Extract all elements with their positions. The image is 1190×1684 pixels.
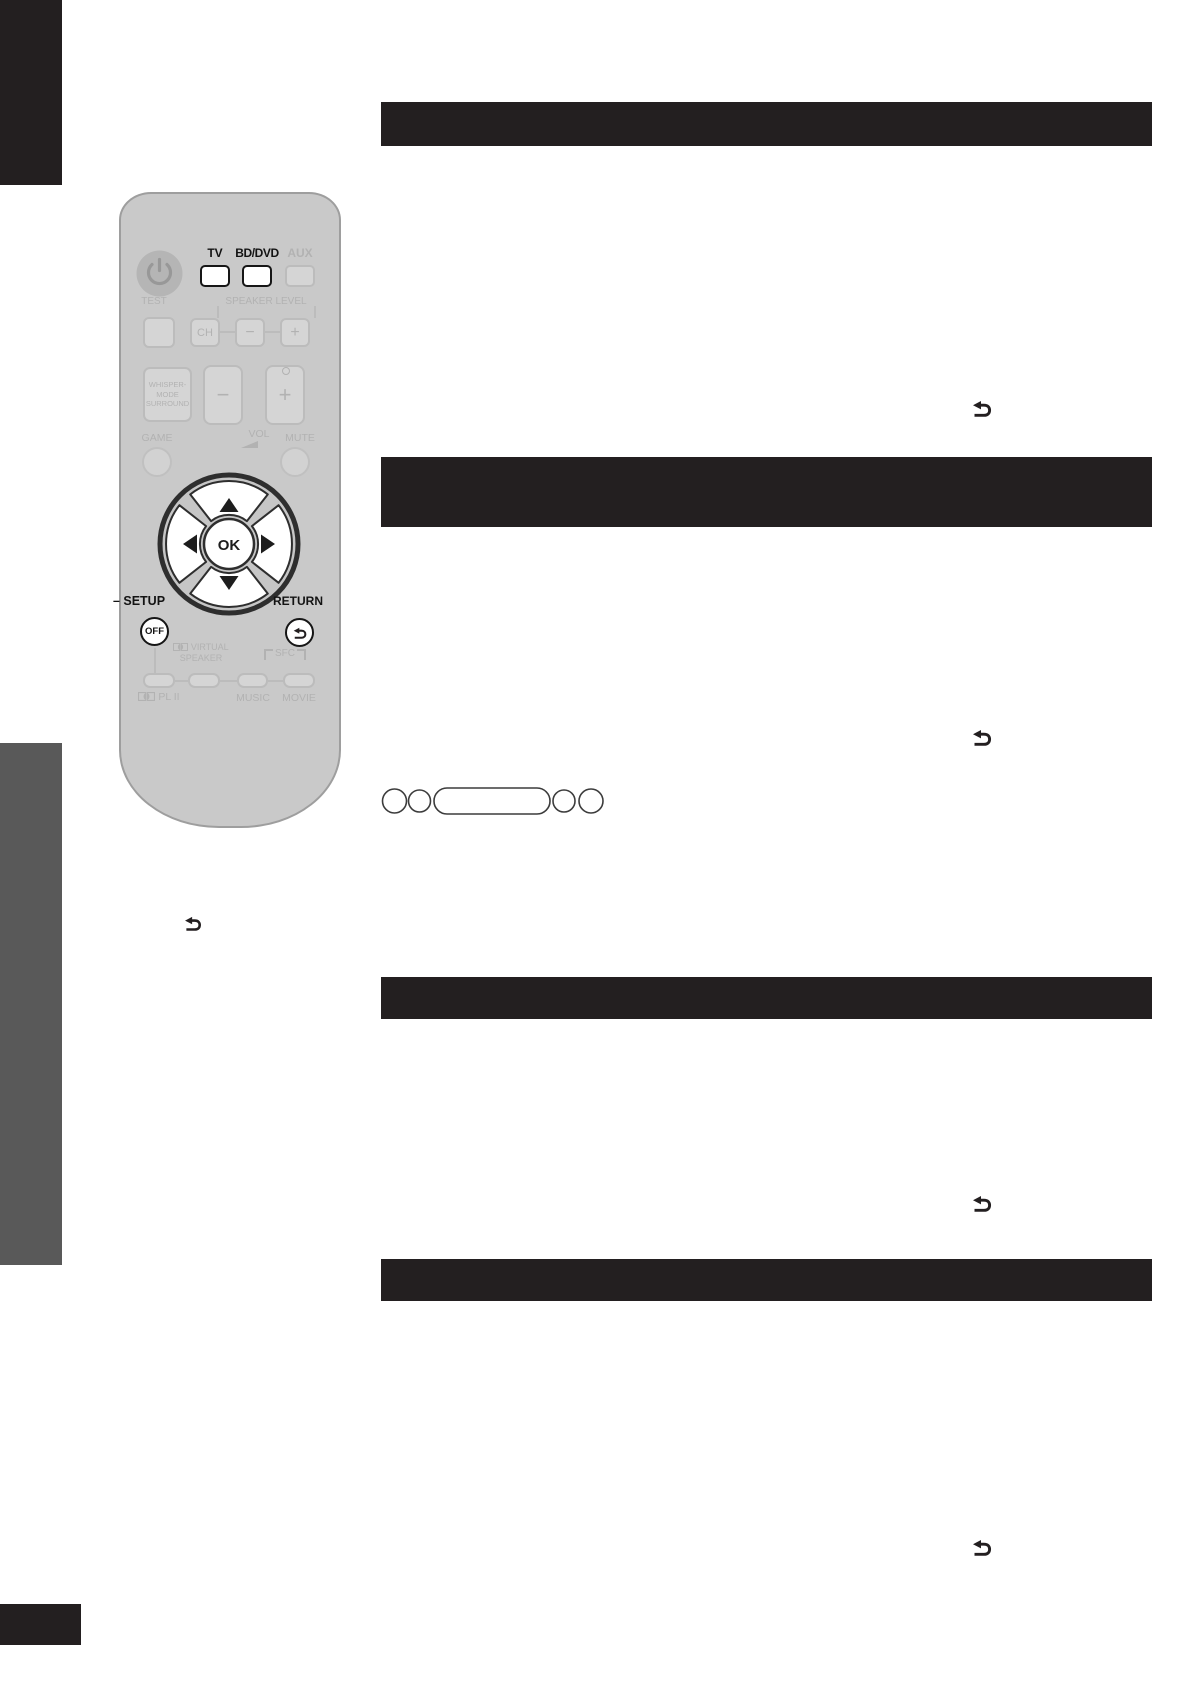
aux-button xyxy=(285,265,315,287)
volume-down-button: − xyxy=(203,365,243,425)
dolby-icon xyxy=(173,643,188,651)
page-edge-tab-gray xyxy=(0,743,62,1265)
test-button xyxy=(143,317,175,348)
connector-row-1 xyxy=(175,680,188,682)
sfc-music-button xyxy=(237,673,268,688)
bddvd-button-label: BD/DVD xyxy=(235,246,279,260)
vol-label: VOL xyxy=(239,428,279,440)
sfc-label: SFC xyxy=(259,648,311,660)
whisper-label-line3: SURROUND xyxy=(146,399,189,408)
speaker-level-label: SPEAKER LEVEL xyxy=(211,296,321,307)
page-edge-tab-bottom xyxy=(0,1604,81,1645)
test-label: TEST xyxy=(133,296,175,307)
section-header-bar-1 xyxy=(381,102,1152,146)
return-button-icon xyxy=(293,627,307,639)
speaker-text: SPEAKER xyxy=(169,653,233,664)
music-label: MUSIC xyxy=(234,692,272,704)
vol-wedge-icon xyxy=(241,441,258,448)
section-header-bar-3 xyxy=(381,977,1152,1019)
connector-minus-plus xyxy=(265,331,280,333)
movie-label: MOVIE xyxy=(280,692,318,704)
whisper-label-line2: MODE xyxy=(156,390,179,399)
return-icon-5 xyxy=(184,916,202,931)
section-header-bar-4 xyxy=(381,1259,1152,1301)
return-icon-4 xyxy=(972,1539,992,1556)
return-label: RETURN xyxy=(272,594,324,608)
tv-button-label: TV xyxy=(200,246,230,260)
section-header-bar-2 xyxy=(381,457,1152,527)
return-icon-2 xyxy=(972,729,992,746)
pl2-text: PL II xyxy=(158,691,179,703)
dolby-icon-pl2 xyxy=(138,692,155,701)
speaker-layout-diagram xyxy=(380,786,604,816)
setup-label: – SETUP xyxy=(111,594,167,608)
virtual-speaker-label: VIRTUAL SPEAKER xyxy=(169,642,233,664)
virtual-speaker-button xyxy=(188,673,220,688)
aux-button-label: AUX xyxy=(285,246,315,260)
speaker-circle-2 xyxy=(409,790,431,812)
speaker-circle-3 xyxy=(553,790,575,812)
mute-label: MUTE xyxy=(280,432,320,444)
speaker-plus-button: + xyxy=(280,318,310,347)
connector-off-down xyxy=(154,648,156,673)
speaker-circle-4 xyxy=(579,789,603,813)
bddvd-button xyxy=(242,265,272,287)
volume-up-tactile-dot xyxy=(282,367,290,375)
return-button xyxy=(285,618,314,647)
sfc-movie-button xyxy=(283,673,315,688)
ok-button-label: OK xyxy=(218,537,241,554)
remote-control-illustration: TV BD/DVD AUX TEST SPEAKER LEVEL CH − + … xyxy=(119,192,341,828)
whisper-label-line1: WHISPER- xyxy=(149,380,187,389)
return-icon-1 xyxy=(972,400,992,417)
power-icon xyxy=(136,250,183,297)
page-edge-tab-top xyxy=(0,0,62,185)
soundbar-pill xyxy=(434,788,550,814)
connector-row-2 xyxy=(220,680,237,682)
virtual-text: VIRTUAL xyxy=(191,642,229,652)
game-label: GAME xyxy=(133,432,181,444)
return-icon-3 xyxy=(972,1195,992,1212)
tv-button xyxy=(200,265,230,287)
pl2-label: PL II xyxy=(131,691,187,703)
connector-row-3 xyxy=(268,680,283,682)
manual-page: TV BD/DVD AUX TEST SPEAKER LEVEL CH − + … xyxy=(0,0,1190,1684)
sfc-text: SFC xyxy=(273,648,297,659)
virtual-label-line: VIRTUAL xyxy=(169,642,233,653)
ch-button: CH xyxy=(190,318,220,347)
speaker-level-tick-left xyxy=(217,306,219,318)
whisper-mode-surround-button: WHISPER- MODE SURROUND xyxy=(143,367,192,422)
sfc-bracket-left xyxy=(264,649,273,660)
speaker-minus-button: − xyxy=(235,318,265,347)
setup-off-button: OFF xyxy=(140,617,169,646)
speaker-level-tick-right xyxy=(314,306,316,318)
sfc-bracket-right xyxy=(297,649,306,660)
connector-ch-minus xyxy=(220,331,235,333)
speaker-circle-1 xyxy=(383,789,407,813)
pl2-button xyxy=(143,673,175,688)
